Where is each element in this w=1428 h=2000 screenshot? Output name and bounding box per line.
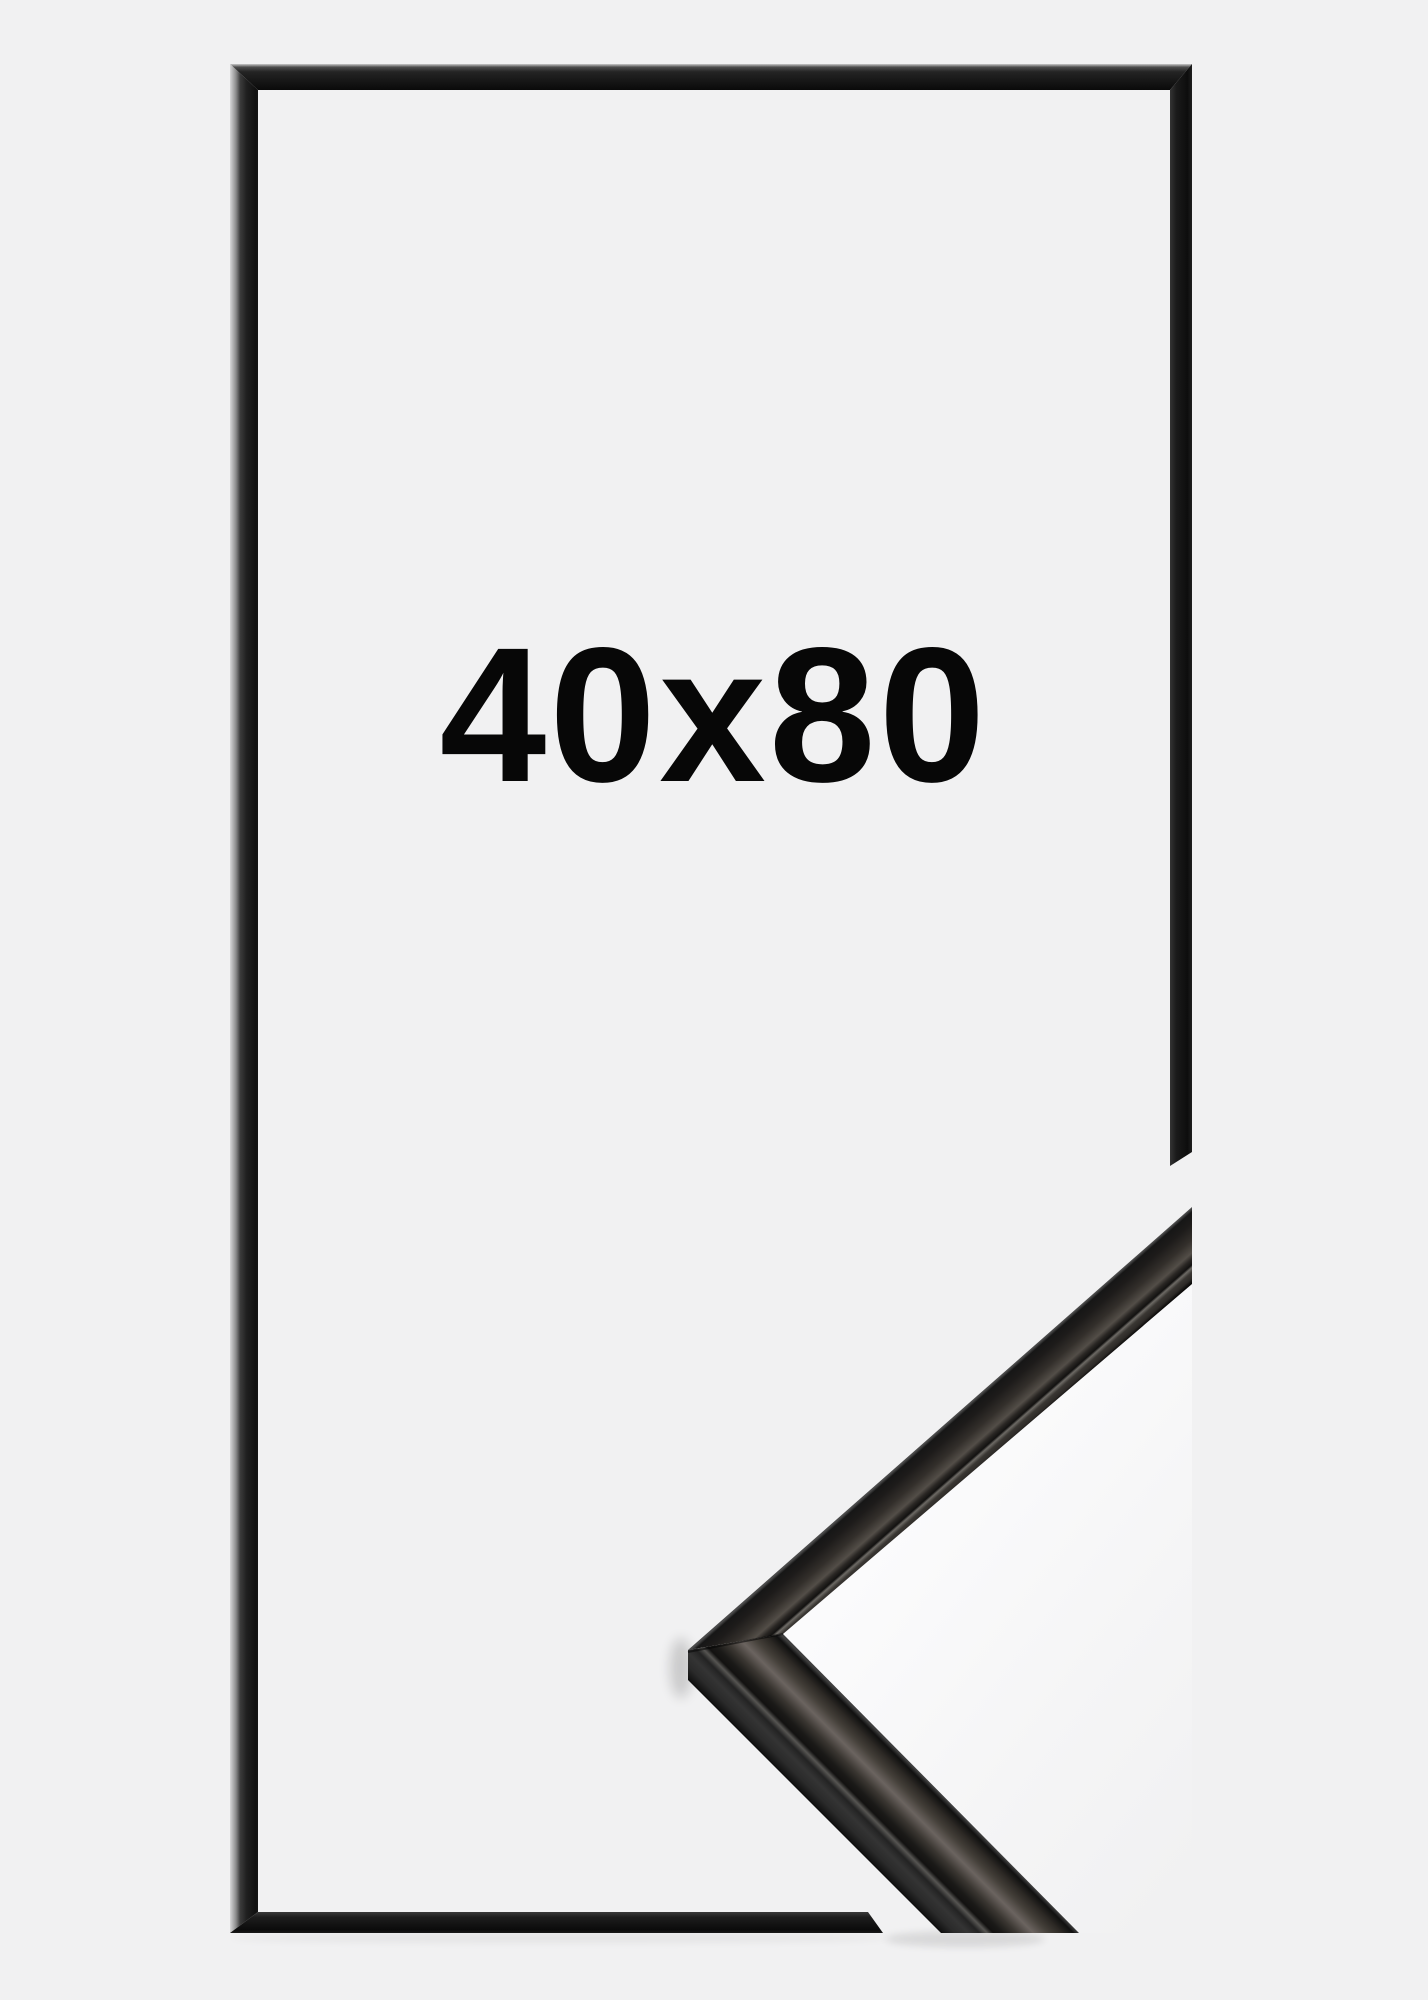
frame-bottom-bar <box>230 1912 883 1933</box>
frame-top-bar <box>230 64 1192 90</box>
detail-arm-shadow <box>885 1931 1045 1947</box>
product-image-canvas: 40x80 <box>0 0 1428 2000</box>
size-label: 40x80 <box>440 619 989 811</box>
frame-left-bar <box>230 64 258 1933</box>
frame-bottom-shadow <box>230 1933 890 1943</box>
frame-right-bar <box>1170 64 1192 1166</box>
frame-illustration <box>0 0 1428 2000</box>
